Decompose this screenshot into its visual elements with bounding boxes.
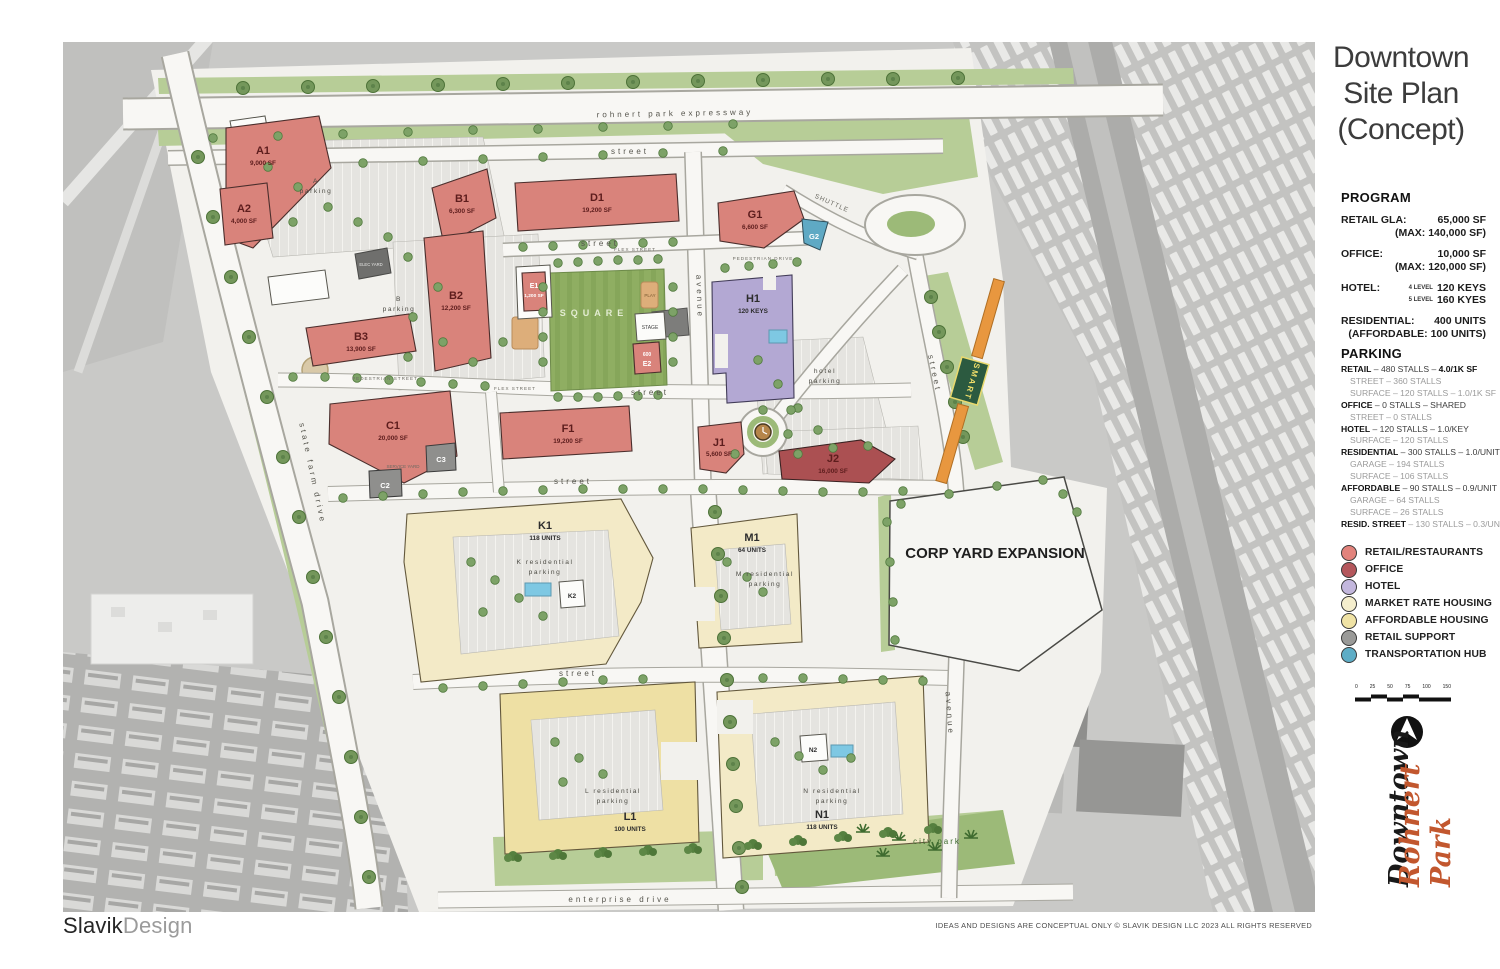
street-label-enterprise: enterprise drive bbox=[568, 895, 671, 904]
square-label: SQUARE bbox=[560, 308, 629, 318]
copyright-disclaimer: IDEAS AND DESIGNS ARE CONCEPTUAL ONLY © … bbox=[930, 921, 1312, 930]
svg-text:9,000 SF: 9,000 SF bbox=[250, 160, 276, 167]
svg-text:19,200 SF: 19,200 SF bbox=[553, 438, 583, 445]
legend-item: MARKET RATE HOUSING bbox=[1341, 595, 1491, 612]
svg-text:D1: D1 bbox=[590, 192, 604, 204]
retail-swatch bbox=[1341, 545, 1357, 561]
legend-item: RETAIL/RESTAURANTS bbox=[1341, 544, 1491, 561]
svg-text:16,000 SF: 16,000 SF bbox=[818, 468, 848, 475]
downtown-rohnert-park-wordmark: Downtown Rohnert Park bbox=[1361, 742, 1471, 887]
legend-item: OFFICE bbox=[1341, 561, 1491, 578]
city-park-label: city park bbox=[913, 837, 961, 846]
retail-support-swatch bbox=[1341, 630, 1357, 646]
svg-text:B3: B3 bbox=[354, 331, 368, 343]
page-title: Downtown Site Plan (Concept) bbox=[1315, 40, 1487, 148]
svg-text:G1: G1 bbox=[748, 209, 763, 221]
legend: RETAIL/RESTAURANTS OFFICE HOTEL MARKET R… bbox=[1341, 544, 1491, 663]
svg-text:E1: E1 bbox=[530, 283, 539, 290]
market-housing-swatch bbox=[1341, 596, 1357, 612]
svg-text:A2: A2 bbox=[237, 203, 251, 215]
flex-street-label: FLEX STREET bbox=[614, 247, 656, 252]
street-label: street bbox=[611, 147, 649, 156]
svg-text:A1: A1 bbox=[256, 145, 270, 157]
svg-text:parking: parking bbox=[809, 378, 842, 385]
svg-text:C3: C3 bbox=[436, 455, 446, 464]
svg-text:L1: L1 bbox=[624, 811, 637, 823]
service-yard-label: SERVICE YARD bbox=[386, 464, 420, 469]
svg-text:12,200 SF: 12,200 SF bbox=[441, 305, 471, 312]
elec-yard-label: ELEC YARD bbox=[359, 262, 382, 267]
svg-text:G2: G2 bbox=[809, 232, 819, 241]
stage-label: STAGE bbox=[642, 325, 659, 331]
svg-text:parking: parking bbox=[529, 569, 562, 576]
pedestrian-street-label: PEDESTRIAN STREET bbox=[352, 376, 418, 381]
slavik-design-logo: SlavikDesign bbox=[63, 913, 193, 939]
svg-text:parking: parking bbox=[300, 188, 333, 195]
pedestrian-drive-label: PEDESTRIAN DRIVE bbox=[733, 256, 794, 261]
svg-text:parking: parking bbox=[816, 798, 849, 805]
svg-text:4,000 SF: 4,000 SF bbox=[231, 218, 257, 225]
svg-text:parking: parking bbox=[597, 798, 630, 805]
svg-text:C1: C1 bbox=[386, 420, 400, 432]
building-e2 bbox=[633, 342, 661, 374]
svg-text:H1: H1 bbox=[746, 293, 760, 305]
street-label: street bbox=[559, 669, 597, 678]
svg-text:K2: K2 bbox=[568, 593, 577, 600]
svg-text:100 UNITS: 100 UNITS bbox=[614, 826, 646, 833]
affordable-housing-swatch bbox=[1341, 613, 1357, 629]
a-parking-label: A bbox=[313, 178, 319, 185]
program-section: PROGRAM RETAIL GLA:65,000 SF (MAX: 140,0… bbox=[1341, 190, 1486, 340]
svg-text:J1: J1 bbox=[713, 437, 725, 449]
svg-text:B2: B2 bbox=[449, 290, 463, 302]
svg-text:C2: C2 bbox=[380, 481, 390, 490]
svg-text:B1: B1 bbox=[455, 193, 469, 205]
transportation-hub-swatch bbox=[1341, 647, 1357, 663]
scale-bar-graphic bbox=[1355, 693, 1455, 703]
program-heading: PROGRAM bbox=[1341, 190, 1486, 205]
svg-text:M1: M1 bbox=[744, 532, 759, 544]
svg-text:20,000 SF: 20,000 SF bbox=[378, 435, 408, 442]
m-parking-label: M residential bbox=[736, 571, 794, 578]
svg-text:1,200 SF: 1,200 SF bbox=[524, 293, 544, 299]
svg-text:6,600 SF: 6,600 SF bbox=[742, 224, 768, 231]
legend-item: AFFORDABLE HOUSING bbox=[1341, 612, 1491, 629]
site-plan-map: SMART rohnert park expressway street str… bbox=[63, 42, 1315, 912]
svg-text:J2: J2 bbox=[827, 453, 839, 465]
legend-item: TRANSPORTATION HUB bbox=[1341, 646, 1491, 663]
flex-street-label: FLEX STREET bbox=[494, 386, 536, 391]
svg-text:19,200 SF: 19,200 SF bbox=[582, 207, 612, 214]
street-label: street bbox=[554, 477, 592, 486]
corp-yard-label: CORP YARD EXPANSION bbox=[905, 545, 1085, 562]
scale-bar: 0255075100150 bbox=[1355, 684, 1455, 708]
svg-text:64 UNITS: 64 UNITS bbox=[738, 547, 767, 554]
play-label: PLAY bbox=[644, 293, 655, 298]
svg-text:parking: parking bbox=[749, 581, 782, 588]
site-plan-sheet: SMART rohnert park expressway street str… bbox=[0, 0, 1500, 969]
svg-text:N2: N2 bbox=[809, 747, 818, 754]
street-label: street bbox=[631, 388, 669, 397]
n-parking-label: N residential bbox=[803, 788, 860, 795]
svg-text:118 UNITS: 118 UNITS bbox=[529, 535, 561, 542]
svg-text:600: 600 bbox=[643, 352, 652, 358]
k-parking-label: K residential bbox=[516, 559, 573, 566]
building-l1 bbox=[500, 682, 699, 854]
svg-text:K1: K1 bbox=[538, 520, 552, 532]
legend-item: RETAIL SUPPORT bbox=[1341, 629, 1491, 646]
hotel-swatch bbox=[1341, 579, 1357, 595]
hotel-parking-label: hotel bbox=[814, 368, 836, 375]
svg-text:F1: F1 bbox=[562, 423, 575, 435]
parking-heading: PARKING bbox=[1341, 346, 1493, 361]
info-panel: Downtown Site Plan (Concept) PROGRAM RET… bbox=[1315, 0, 1500, 969]
svg-text:120 KEYS: 120 KEYS bbox=[738, 308, 769, 315]
parking-section: PARKING RETAIL – 480 STALLS – 4.0/1K SF … bbox=[1341, 346, 1493, 531]
svg-text:N1: N1 bbox=[815, 809, 829, 821]
b-parking-label: B bbox=[396, 296, 402, 303]
office-swatch bbox=[1341, 562, 1357, 578]
map-svg: SMART rohnert park expressway street str… bbox=[63, 42, 1315, 912]
svg-text:6,300 SF: 6,300 SF bbox=[449, 208, 475, 215]
svg-text:118 UNITS: 118 UNITS bbox=[806, 824, 838, 831]
svg-text:5,600 SF: 5,600 SF bbox=[706, 451, 732, 458]
street-label-avenue: avenue bbox=[694, 275, 705, 320]
svg-text:parking: parking bbox=[383, 306, 416, 313]
svg-text:13,900 SF: 13,900 SF bbox=[346, 346, 376, 353]
svg-text:E2: E2 bbox=[643, 361, 652, 368]
legend-item: HOTEL bbox=[1341, 578, 1491, 595]
l-parking-label: L residential bbox=[585, 788, 641, 795]
